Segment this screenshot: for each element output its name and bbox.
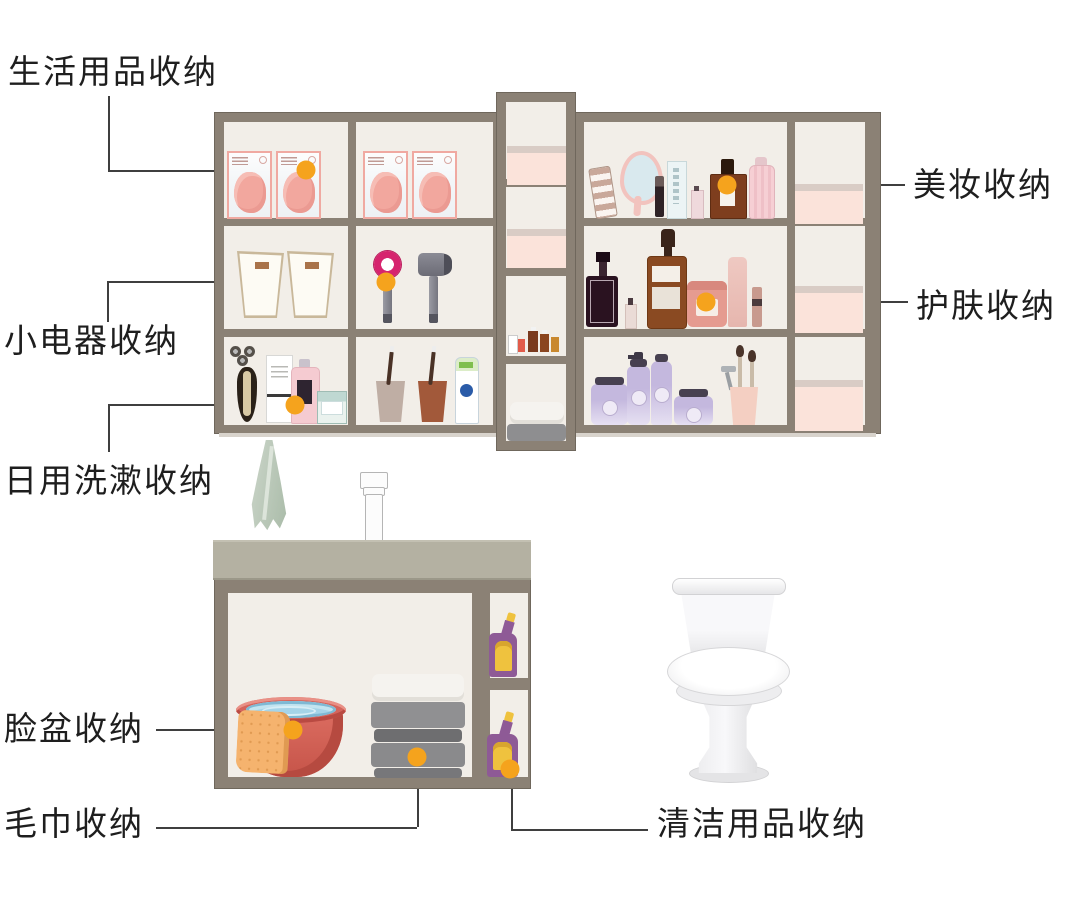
face-mask-pack-icon <box>412 151 457 219</box>
label-makeup-storage: 美妆收纳 <box>913 167 1053 203</box>
mirror-handle <box>633 196 641 216</box>
mask-text-lines <box>368 157 384 165</box>
lavender-jar-icon <box>674 396 713 425</box>
label-small-appliances-storage: 小电器收纳 <box>4 323 179 359</box>
perfume-cap <box>721 159 734 175</box>
towel-stack-gray <box>374 729 462 742</box>
vanity-countertop <box>213 540 531 580</box>
pink-storage-box-icon <box>507 229 566 268</box>
small-bottle-icon <box>518 339 525 352</box>
dropper-bulb <box>661 229 675 247</box>
leader-line <box>108 96 110 170</box>
storage-basket-icon <box>237 251 284 318</box>
lipstick-icon <box>655 176 664 217</box>
marker-skincare <box>697 293 716 312</box>
towel-stack-white <box>372 674 464 701</box>
storage-basket-icon <box>287 251 334 318</box>
lavender-jar-icon <box>591 384 628 425</box>
orange-towel-icon <box>235 710 290 775</box>
folded-towel-icon <box>510 402 564 424</box>
gray-hair-dryer-icon <box>418 253 452 276</box>
marker-makeup <box>718 176 737 195</box>
serum-dropper-bottle-icon <box>647 256 687 329</box>
small-bottle-icon <box>540 334 549 352</box>
nail-polish-icon <box>625 304 637 329</box>
small-bottle-icon <box>551 337 559 352</box>
mask-text-lines <box>281 157 297 165</box>
dark-perfume-bottle-icon <box>586 276 618 327</box>
marker-daily-goods <box>297 161 316 180</box>
folded-towel-icon <box>507 424 566 441</box>
toothpaste-icon <box>455 357 479 424</box>
marker-washbasin <box>284 721 303 740</box>
mask-text-lines <box>417 157 433 165</box>
pink-tube-icon <box>728 257 747 327</box>
towel-stack-gray <box>371 702 465 728</box>
tall-cosmetic-bottle-icon <box>667 161 687 219</box>
cleaner-label <box>495 641 512 671</box>
towel-stack-gray <box>374 768 462 778</box>
small-bottle-icon <box>508 335 518 354</box>
pink-storage-box-icon <box>507 146 566 185</box>
brush-cup-icon <box>728 387 760 425</box>
lavender-tube-icon <box>651 361 672 425</box>
hair-dryer-handle <box>429 276 438 323</box>
marker-small-appliances <box>377 273 396 292</box>
cream-jar-icon <box>317 391 347 424</box>
pink-storage-box-icon <box>795 286 863 333</box>
small-bottle-icon <box>528 331 538 352</box>
ribbed-pink-bottle-icon <box>749 165 775 219</box>
label-washbasin-storage: 脸盆收纳 <box>4 711 144 747</box>
marker-cleaning <box>501 760 520 779</box>
mask-text-lines <box>232 157 248 165</box>
perfume-cap <box>596 252 610 262</box>
face-mask-pack-icon <box>276 151 321 219</box>
label-daily-goods-storage: 生活用品收纳 <box>8 54 218 90</box>
label-cleaning-supplies-storage: 清洁用品收纳 <box>657 806 867 842</box>
face-mask-pack-icon <box>363 151 408 219</box>
marker-daily-toiletries <box>286 396 305 415</box>
bathroom-storage-diagram: 生活用品收纳 小电器收纳 日用洗漱收纳 美妆收纳 护肤收纳 脸盆收纳 毛巾收纳 … <box>0 0 1080 900</box>
pink-storage-box-icon <box>795 184 863 224</box>
makeup-brush-icon <box>750 361 754 391</box>
faucet-stem <box>365 494 383 542</box>
leader-line <box>511 829 648 831</box>
toilet-tank-lid <box>672 578 786 595</box>
leader-line <box>156 827 417 829</box>
leader-line <box>107 281 109 322</box>
label-skincare-storage: 护肤收纳 <box>916 288 1056 324</box>
leader-line <box>108 404 110 452</box>
lipstick-icon <box>752 287 762 327</box>
hanging-towel-icon <box>251 440 288 532</box>
mini-bottle-icon <box>691 190 704 219</box>
shaver-head-icon <box>237 355 248 366</box>
lavender-pump-bottle-icon <box>627 366 650 425</box>
makeup-brush-icon <box>738 356 742 390</box>
label-towel-storage: 毛巾收纳 <box>4 806 144 842</box>
label-daily-toiletries-storage: 日用洗漱收纳 <box>4 463 214 499</box>
toilet-seat <box>667 647 790 696</box>
face-mask-pack-icon <box>227 151 272 219</box>
pink-storage-box-icon <box>795 380 863 431</box>
marker-towel <box>408 748 427 767</box>
